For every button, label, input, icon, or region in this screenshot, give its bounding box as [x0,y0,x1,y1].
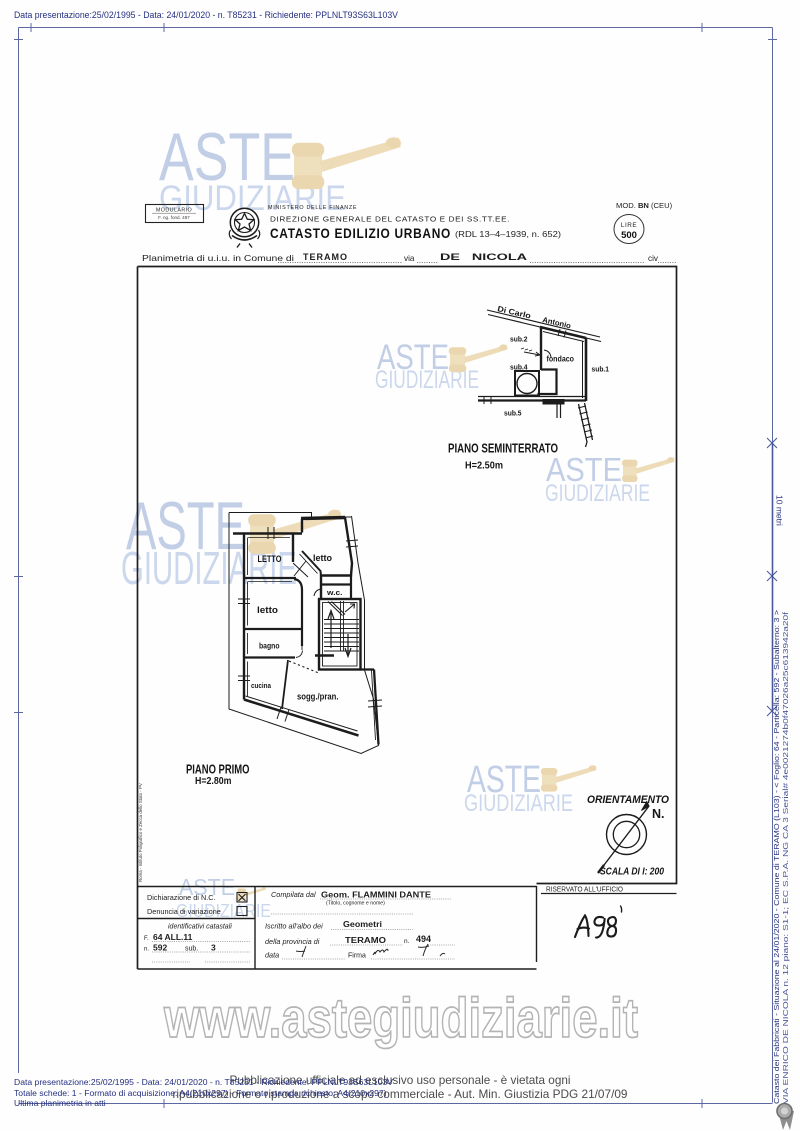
svg-text:TERAMO: TERAMO [345,935,386,945]
svg-text:F.: F. [144,936,149,942]
svg-text:sub.2: sub.2 [510,335,528,344]
svg-text:DE NICOLA: DE NICOLA [440,252,528,262]
svg-text:letto: letto [257,605,279,615]
svg-text:fondaco: fondaco [547,355,575,364]
svg-text:500: 500 [621,230,637,241]
svg-text:VIA ENRICO DE NICOLA n. 12 pia: VIA ENRICO DE NICOLA n. 12 piano: S1-1; … [781,612,790,1104]
svg-text:LIRE: LIRE [621,222,637,229]
svg-text:via: via [404,254,415,263]
svg-text:GIUDIZIARIE: GIUDIZIARIE [545,480,650,507]
svg-text:sub.: sub. [185,946,198,953]
svg-text:3: 3 [211,943,216,953]
svg-text:Planimetria di u.i.u. in C: Planimetria di u.i.u. in Comune di [142,254,294,263]
svg-text:TERAMO: TERAMO [303,252,348,262]
svg-text:data: data [265,951,279,960]
svg-text:sub.1: sub.1 [592,365,610,374]
svg-text:n.: n. [404,938,410,945]
svg-text:Dichiarazione di N.C.: Dichiarazione di N.C. [147,893,216,902]
svg-text:w.c.: w.c. [326,588,343,597]
svg-text:cucina: cucina [251,681,272,690]
svg-text:Data presentazione:25/02/1995: Data presentazione:25/02/1995 - Data: 24… [14,10,399,20]
svg-text:Geometri: Geometri [343,919,382,929]
svg-text:10 metri: 10 metri [775,495,785,526]
svg-text:DIREZIONE GENERALE DEL CATASTO: DIREZIONE GENERALE DEL CATASTO E DEI SS.… [270,215,510,224]
svg-text:MINISTERO DELLE FINANZE: MINISTERO DELLE FINANZE [268,205,357,211]
svg-text:Firma: Firma [348,953,366,960]
svg-text:N.: N. [652,807,665,821]
svg-text:bagno: bagno [259,642,280,651]
svg-text:MODULARIO: MODULARIO [156,208,192,214]
svg-text:SCALA DI I: 200: SCALA DI I: 200 [600,867,664,878]
svg-text:della provincia di: della provincia di [265,937,320,946]
svg-text:Roma - Istituto Poligrafico e: Roma - Istituto Poligrafico e Zecca dell… [138,783,143,882]
svg-text:sub.5: sub.5 [504,409,522,418]
svg-text:Catasto dei Fabbricati - Situa: Catasto dei Fabbricati - Situazione al 2… [772,609,781,1104]
svg-text:CATASTO EDILIZIO URBANO: CATASTO EDILIZIO URBANO [270,226,451,241]
svg-text:identificativi catastali: identificativi catastali [168,924,232,931]
svg-text:sogg./pran.: sogg./pran. [297,692,339,702]
svg-text:Geom. FLAMMINI DANTE: Geom. FLAMMINI DANTE [321,890,431,900]
svg-text:(RDL 13–4–1939, n. 652): (RDL 13–4–1939, n. 652) [455,230,561,239]
svg-text:H=2.80m: H=2.80m [195,775,232,787]
svg-text:GIUDIZIARIE: GIUDIZIARIE [464,790,573,817]
svg-text:PIANO SEMINTERRATO: PIANO SEMINTERRATO [448,441,558,456]
svg-text:Totale schede: 1 - Formato di: Totale schede: 1 - Formato di acquisizio… [14,1088,387,1098]
svg-text:www.astegiudiziarie.it: www.astegiudiziarie.it [163,986,638,1049]
svg-text:MOD. BN (CEU): MOD. BN (CEU) [616,201,673,210]
svg-text:Compilata dal: Compilata dal [271,890,316,899]
svg-text:592: 592 [153,943,167,953]
svg-text:H=2.50m: H=2.50m [465,460,503,472]
svg-text:letto: letto [313,553,333,563]
svg-text:Ultima planimetria in atti: Ultima planimetria in atti [14,1098,106,1108]
svg-text:Denuncia di variazione: Denuncia di variazione [147,907,221,916]
svg-text:sub.4: sub.4 [510,363,528,372]
svg-text:RISERVATO ALL'UFFICIO: RISERVATO ALL'UFFICIO [546,887,624,894]
svg-text:civ: civ [648,254,659,263]
svg-text:n.: n. [144,947,149,953]
svg-text:LETTO: LETTO [258,554,282,565]
svg-text:ORIENTAMENTO: ORIENTAMENTO [587,794,669,806]
svg-text:F. ng. fond. 487: F. ng. fond. 487 [158,215,190,220]
svg-text:Data presentazione:25/02/1995: Data presentazione:25/02/1995 - Data: 24… [14,1077,393,1087]
svg-text:494: 494 [416,934,431,944]
svg-text:Iscritto all'albo dei: Iscritto all'albo dei [265,922,323,931]
svg-text:64 ALL.11: 64 ALL.11 [153,932,193,942]
svg-text:(Titolo, cognome e nome): (Titolo, cognome e nome) [326,901,385,907]
